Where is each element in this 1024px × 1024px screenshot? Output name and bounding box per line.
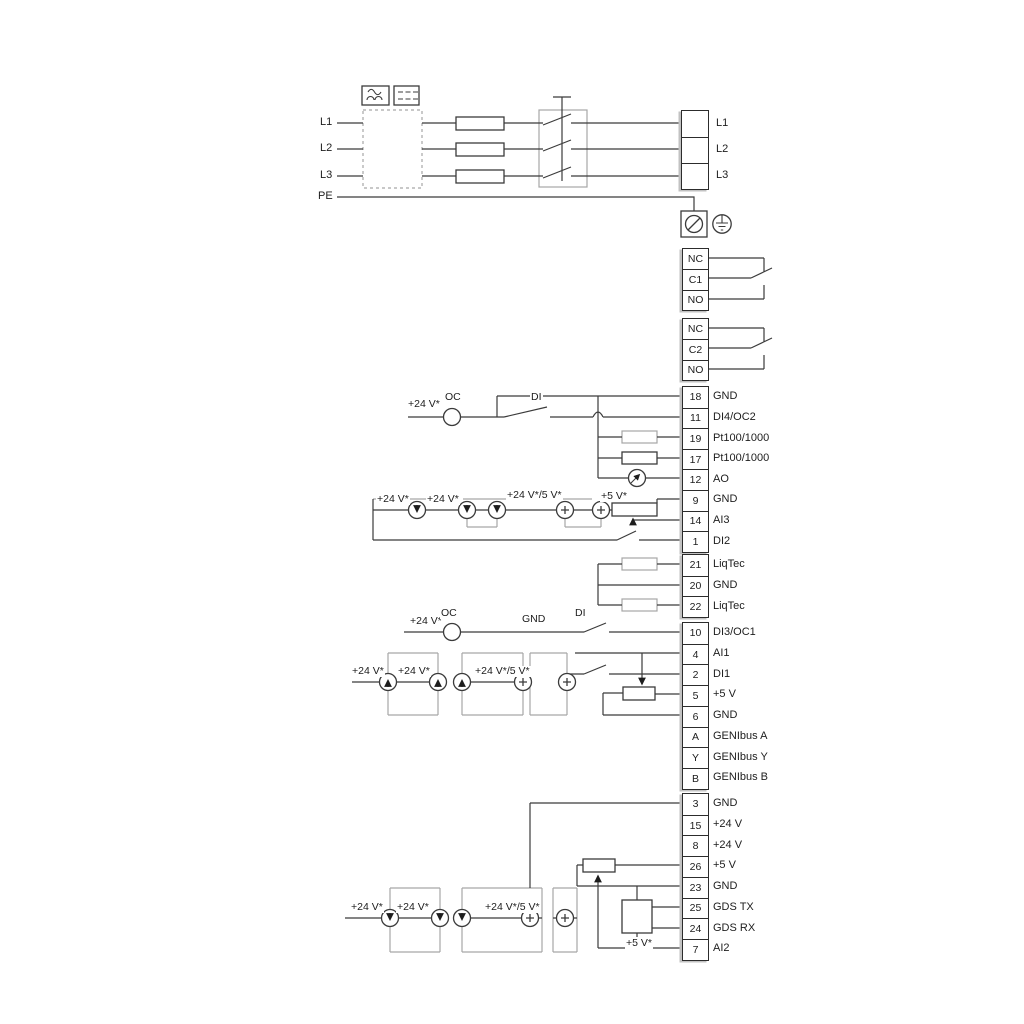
terminal-cell-14: 14 bbox=[683, 511, 708, 532]
terminal-block-strip_c: 104256AYB bbox=[682, 622, 709, 790]
wiring-diagram-page: NCC1NONCC2NO18111917129141212022104256AY… bbox=[0, 0, 1024, 1024]
current-source-arrow-icon bbox=[459, 502, 476, 519]
terminal-label-GDS RX: GDS RX bbox=[713, 921, 755, 935]
potentiometer-icon bbox=[583, 859, 615, 872]
power-wires bbox=[337, 97, 694, 211]
terminal-label-AO: AO bbox=[713, 472, 729, 486]
terminal-label-GND: GND bbox=[713, 389, 737, 403]
terminal-cell-23: 23 bbox=[683, 877, 708, 898]
terminal-label-L2: L2 bbox=[716, 142, 728, 156]
terminal-label-DI4/OC2: DI4/OC2 bbox=[713, 410, 756, 424]
terminal-block-strip_b: 212022 bbox=[682, 554, 709, 618]
terminal-label-GND: GND bbox=[713, 492, 737, 506]
terminal-cell-21: 21 bbox=[683, 555, 708, 576]
power-in-label-L1: L1 bbox=[320, 116, 332, 129]
gray-outlines bbox=[363, 110, 657, 952]
terminal-label-AI2: AI2 bbox=[713, 941, 730, 955]
terminal-label-L3: L3 bbox=[716, 168, 728, 182]
annotation-label: OC bbox=[440, 608, 458, 619]
annotation-label: +24 V* bbox=[376, 494, 410, 505]
terminal-label-+5 V: +5 V bbox=[713, 687, 736, 701]
terminal-block-strip_d: 3158262325247 bbox=[682, 793, 709, 961]
annotation-label: DI bbox=[574, 608, 587, 619]
terminal-label-AI3: AI3 bbox=[713, 513, 730, 527]
terminal-cell-26: 26 bbox=[683, 856, 708, 877]
terminal-cell-25: 25 bbox=[683, 898, 708, 919]
ac-symbol-box bbox=[362, 86, 389, 105]
annotation-label: +24 V* bbox=[351, 666, 385, 677]
terminal-label-GND: GND bbox=[713, 879, 737, 893]
terminal-cell-22: 22 bbox=[683, 596, 708, 617]
terminal-block-strip_a: 18111917129141 bbox=[682, 386, 709, 553]
terminal-cell-L3 bbox=[682, 163, 708, 189]
gds-sensor-box bbox=[622, 900, 652, 933]
terminal-label-LiqTec: LiqTec bbox=[713, 599, 745, 613]
power-in-label-PE: PE bbox=[318, 190, 333, 203]
terminal-label-GND: GND bbox=[713, 708, 737, 722]
potentiometer-icon bbox=[612, 503, 657, 516]
terminal-cell-B: B bbox=[683, 768, 708, 789]
sensor-bracket-lines bbox=[373, 499, 601, 952]
annotation-label: +5 V* bbox=[600, 491, 628, 502]
terminal-label-+24 V: +24 V bbox=[713, 838, 742, 852]
sensor-source-symbols bbox=[380, 502, 610, 927]
terminal-label-GENIbus Y: GENIbus Y bbox=[713, 750, 768, 764]
terminal-cell-4: 4 bbox=[683, 644, 708, 665]
terminal-label-DI2: DI2 bbox=[713, 534, 730, 548]
current-source-arrow-icon bbox=[454, 674, 471, 691]
annotation-label: +24 V* bbox=[409, 616, 443, 627]
terminal-cell-NC: NC bbox=[683, 249, 708, 269]
terminal-cell-17: 17 bbox=[683, 449, 708, 470]
terminal-block-relay2: NCC2NO bbox=[682, 318, 709, 381]
terminal-cell-19: 19 bbox=[683, 428, 708, 449]
current-source-arrow-icon bbox=[489, 502, 506, 519]
terminal-cell-2: 2 bbox=[683, 664, 708, 685]
terminal-cell-20: 20 bbox=[683, 576, 708, 597]
terminal-cell-L1 bbox=[682, 111, 708, 137]
terminal-cell-C1: C1 bbox=[683, 269, 708, 289]
terminal-label-AI1: AI1 bbox=[713, 646, 730, 660]
terminal-cell-24: 24 bbox=[683, 918, 708, 939]
terminal-cell-9: 9 bbox=[683, 490, 708, 511]
open-collector-icon bbox=[444, 409, 461, 426]
pt100-sensor-resistor-icon bbox=[622, 452, 657, 464]
terminal-cell-3: 3 bbox=[683, 794, 708, 815]
terminal-cell-10: 10 bbox=[683, 623, 708, 644]
terminal-cell-L2 bbox=[682, 137, 708, 163]
fuse-icon bbox=[456, 143, 504, 156]
current-source-arrow-icon bbox=[430, 674, 447, 691]
wiring-diagram-canvas bbox=[0, 0, 1024, 1024]
liqtec-sensor-resistor-icon bbox=[622, 599, 657, 611]
terminal-cell-NC: NC bbox=[683, 319, 708, 339]
current-source-arrow-icon bbox=[409, 502, 426, 519]
annotation-label: +24 V* bbox=[426, 494, 460, 505]
current-source-arrow-icon bbox=[454, 910, 471, 927]
annotation-label: OC bbox=[444, 392, 462, 403]
terminal-cell-Y: Y bbox=[683, 747, 708, 768]
terminal-label-Pt100/1000: Pt100/1000 bbox=[713, 451, 769, 465]
terminal-label-LiqTec: LiqTec bbox=[713, 557, 745, 571]
annotation-label: +24 V*/5 V* bbox=[506, 490, 563, 501]
fuse-icon bbox=[456, 117, 504, 130]
voltage-source-plus-icon bbox=[557, 502, 574, 519]
dc-symbol-box bbox=[394, 86, 419, 105]
voltage-source-plus-icon bbox=[557, 910, 574, 927]
terminal-cell-15: 15 bbox=[683, 815, 708, 836]
annotation-label: +24 V* bbox=[350, 902, 384, 913]
potentiometer-icon bbox=[623, 687, 655, 700]
terminal-label-GENIbus A: GENIbus A bbox=[713, 729, 767, 743]
terminal-cell-C2: C2 bbox=[683, 339, 708, 359]
analog-output-meter-icon bbox=[629, 470, 646, 487]
terminal-cell-8: 8 bbox=[683, 835, 708, 856]
annotation-label: +24 V*/5 V* bbox=[484, 902, 541, 913]
terminal-label-L1: L1 bbox=[716, 116, 728, 130]
terminal-label-DI1: DI1 bbox=[713, 667, 730, 681]
terminal-block-power_out bbox=[681, 110, 709, 190]
terminal-label-GND: GND bbox=[713, 578, 737, 592]
voltage-source-plus-icon bbox=[593, 502, 610, 519]
terminal-cell-11: 11 bbox=[683, 408, 708, 429]
terminal-label-DI3/OC1: DI3/OC1 bbox=[713, 625, 756, 639]
pt100-sensor-resistor-icon bbox=[622, 431, 657, 443]
annotation-label: GND bbox=[521, 614, 546, 625]
annotation-label: +24 V*/5 V* bbox=[474, 666, 531, 677]
terminal-cell-1: 1 bbox=[683, 531, 708, 552]
open-collector-icon bbox=[444, 624, 461, 641]
voltage-source-plus-icon bbox=[559, 674, 576, 691]
terminal-label-Pt100/1000: Pt100/1000 bbox=[713, 431, 769, 445]
emc-filter-box bbox=[363, 110, 422, 188]
terminal-cell-NO: NO bbox=[683, 290, 708, 310]
terminal-label-+24 V: +24 V bbox=[713, 817, 742, 831]
terminal-label-+5 V: +5 V bbox=[713, 858, 736, 872]
terminal-cell-6: 6 bbox=[683, 706, 708, 727]
relay-wires bbox=[707, 258, 772, 369]
annotation-label: +5 V* bbox=[625, 938, 653, 949]
terminal-cell-7: 7 bbox=[683, 939, 708, 960]
fuse-icon bbox=[456, 170, 504, 183]
terminal-cell-A: A bbox=[683, 727, 708, 748]
power-in-label-L2: L2 bbox=[320, 142, 332, 155]
annotation-label: +24 V* bbox=[407, 399, 441, 410]
terminal-cell-18: 18 bbox=[683, 387, 708, 408]
terminal-cell-12: 12 bbox=[683, 469, 708, 490]
terminal-cell-NO: NO bbox=[683, 360, 708, 380]
annotation-label: +24 V* bbox=[396, 902, 430, 913]
annotation-label: DI bbox=[530, 392, 543, 403]
terminal-label-GND: GND bbox=[713, 796, 737, 810]
terminal-block-relay1: NCC1NO bbox=[682, 248, 709, 311]
power-in-label-L3: L3 bbox=[320, 169, 332, 182]
terminal-label-GDS TX: GDS TX bbox=[713, 900, 754, 914]
current-source-arrow-icon bbox=[432, 910, 449, 927]
liqtec-sensor-resistor-icon bbox=[622, 558, 657, 570]
annotation-label: +24 V* bbox=[397, 666, 431, 677]
terminal-cell-5: 5 bbox=[683, 685, 708, 706]
terminal-label-GENIbus B: GENIbus B bbox=[713, 770, 768, 784]
